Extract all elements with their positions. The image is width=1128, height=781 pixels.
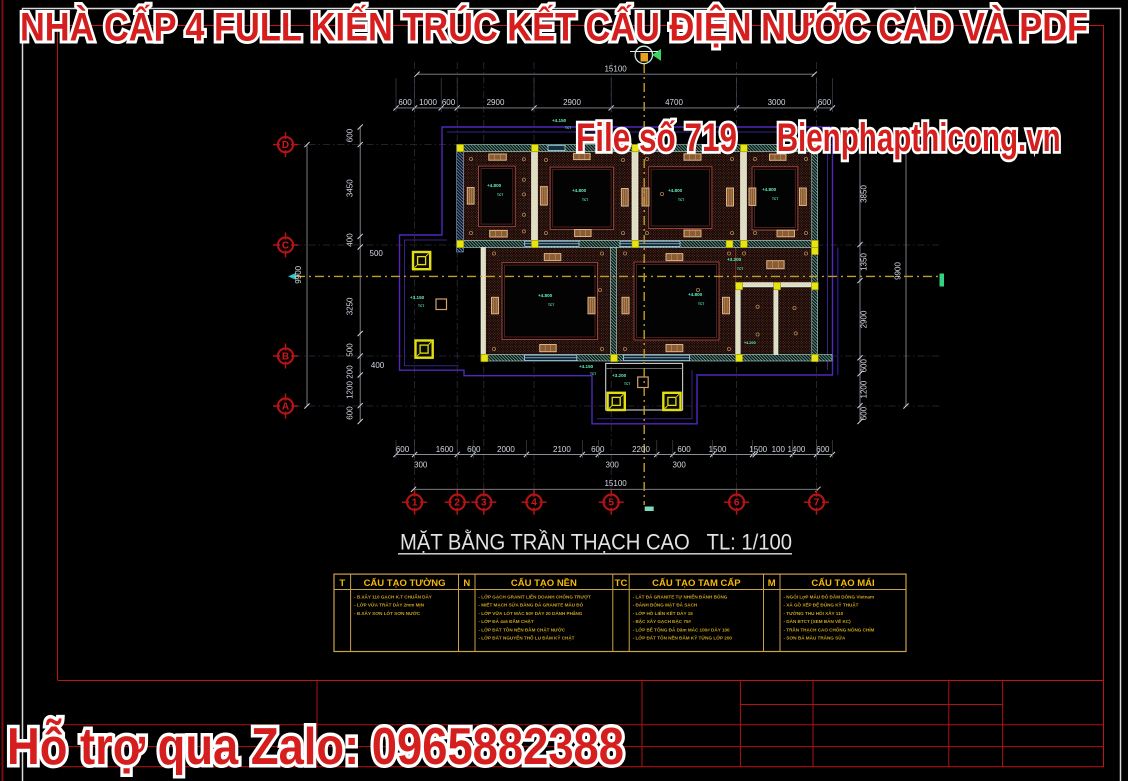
svg-text:- LỚP BÊ TÔNG ĐÁ Dăm MÁC 100#: - LỚP BÊ TÔNG ĐÁ Dăm MÁC 100# DÀY 100 xyxy=(633,625,730,632)
svg-text:- LỚP ĐẤT NGUYÊN THỔ LU ĐẦM KỸ: - LỚP ĐẤT NGUYÊN THỔ LU ĐẦM KỸ CHẶT xyxy=(479,634,575,641)
svg-text:- TƯỜNG THU HỒI XÂY 110: - TƯỜNG THU HỒI XÂY 110 xyxy=(784,609,844,616)
svg-text:- SƠN BẢ MÀU TRẮNG SỮA: - SƠN BẢ MÀU TRẮNG SỮA xyxy=(784,634,847,641)
svg-text:T: T xyxy=(339,578,345,589)
svg-text:- LỚP VỮA TRÁT DÀY 2mm MỊN: - LỚP VỮA TRÁT DÀY 2mm MỊN xyxy=(354,601,425,608)
svg-text:- LỚP ĐÁ 4x6 ĐẦM CHẶT: - LỚP ĐÁ 4x6 ĐẦM CHẶT xyxy=(479,617,534,624)
svg-text:300: 300 xyxy=(673,461,687,470)
svg-text:- LỚP ĐẤT TÔN NỀN ĐẦM CHẶT NƯỚ: - LỚP ĐẤT TÔN NỀN ĐẦM CHẶT NƯỚC xyxy=(479,625,566,632)
svg-text:15100: 15100 xyxy=(604,479,627,488)
svg-text:B: B xyxy=(282,352,289,363)
svg-text:1: 1 xyxy=(412,498,418,509)
svg-text:TCT: TCT xyxy=(624,382,630,386)
svg-text:NHÀ CẤP 4 FULL KIẾN TRÚC KẾT C: NHÀ CẤP 4 FULL KIẾN TRÚC KẾT CẤU ĐIỆN NƯ… xyxy=(20,6,1088,50)
svg-text:+4.800: +4.800 xyxy=(538,293,553,298)
svg-text:400: 400 xyxy=(371,361,385,370)
svg-text:6: 6 xyxy=(734,498,740,509)
svg-text:1350: 1350 xyxy=(860,253,869,271)
svg-text:1200: 1200 xyxy=(346,381,355,399)
svg-text:2: 2 xyxy=(454,498,460,509)
svg-text:600: 600 xyxy=(677,445,691,454)
svg-text:MẶT BẰNG TRẦN THẠCH CAO TL:: MẶT BẰNG TRẦN THẠCH CAO TL: 1/100 xyxy=(400,530,792,555)
svg-text:- ĐÁNH BÓNG MẶT ĐÁ SẠCH: - ĐÁNH BÓNG MẶT ĐÁ SẠCH xyxy=(633,601,698,608)
svg-text:CẤU TẠO NỀN: CẤU TẠO NỀN xyxy=(511,578,577,589)
svg-text:1500: 1500 xyxy=(749,445,767,454)
svg-text:TC: TC xyxy=(615,578,628,589)
svg-text:+4.800: +4.800 xyxy=(487,183,502,188)
svg-text:TCT: TCT xyxy=(678,198,684,202)
svg-text:TCT: TCT xyxy=(565,126,571,130)
svg-text:+4.200: +4.200 xyxy=(744,341,756,345)
svg-text:500: 500 xyxy=(370,249,384,258)
svg-text:- XÀ GỒ XẾP ĐỆ ĐÚNG KỸ THUẬT: - XÀ GỒ XẾP ĐỆ ĐÚNG KỸ THUẬT xyxy=(784,601,859,608)
svg-text:3000: 3000 xyxy=(768,98,786,107)
svg-text:D: D xyxy=(282,140,289,151)
svg-text:1000: 1000 xyxy=(419,98,437,107)
svg-text:TCT: TCT xyxy=(497,193,503,197)
svg-text:3450: 3450 xyxy=(346,179,355,197)
svg-text:M: M xyxy=(768,578,776,589)
svg-text:3: 3 xyxy=(481,498,487,509)
svg-text:9900: 9900 xyxy=(294,265,303,283)
svg-text:600: 600 xyxy=(860,358,869,372)
svg-text:600: 600 xyxy=(860,406,869,420)
svg-text:600: 600 xyxy=(467,445,481,454)
svg-text:+4.150: +4.150 xyxy=(579,364,594,369)
svg-text:4: 4 xyxy=(531,498,537,509)
svg-text:+3.200: +3.200 xyxy=(612,373,627,378)
svg-text:600: 600 xyxy=(346,406,355,420)
svg-text:15100: 15100 xyxy=(604,65,627,74)
svg-text:2100: 2100 xyxy=(553,445,571,454)
svg-text:- NGÓI LợP MÀU ĐỎ ĐẦM DÒNG Vie: - NGÓI LợP MÀU ĐỎ ĐẦM DÒNG Vietnam xyxy=(784,593,875,600)
svg-text:- LỚP HỒ LIÊN KẾT DÀY 15: - LỚP HỒ LIÊN KẾT DÀY 15 xyxy=(633,609,694,616)
svg-text:300: 300 xyxy=(414,461,428,470)
svg-text:TCT: TCT xyxy=(548,303,554,307)
svg-text:+4.800: +4.800 xyxy=(668,188,683,193)
svg-text:600: 600 xyxy=(442,98,456,107)
svg-text:- DÀN BTCT (XEM BẢN VẼ KC): - DÀN BTCT (XEM BẢN VẼ KC) xyxy=(784,618,852,624)
svg-text:1400: 1400 xyxy=(788,445,806,454)
svg-text:- LỚP ĐẤT TÔN NỀN ĐẦM KỸ TỪNG: - LỚP ĐẤT TÔN NỀN ĐẦM KỸ TỪNG LỚP 200 xyxy=(633,634,733,641)
svg-text:500: 500 xyxy=(346,343,355,357)
svg-text:A: A xyxy=(282,402,289,413)
svg-text:CẤU TẠO TƯỜNG: CẤU TẠO TƯỜNG xyxy=(364,577,446,589)
svg-text:5: 5 xyxy=(608,498,614,509)
svg-text:7: 7 xyxy=(814,498,820,509)
svg-text:Bienphapthicong.vn: Bienphapthicong.vn xyxy=(777,116,1061,160)
svg-text:- LỚP GẠCH GRANIT LIÊN DOANH C: - LỚP GẠCH GRANIT LIÊN DOANH CHỐNG TRƯỢT xyxy=(479,593,592,600)
svg-text:- B.XÂY 110 GẠCH K.T CHUẨN DÀY: - B.XÂY 110 GẠCH K.T CHUẨN DÀY xyxy=(354,594,432,600)
svg-text:2000: 2000 xyxy=(497,445,515,454)
svg-text:2200: 2200 xyxy=(632,445,650,454)
svg-text:2900: 2900 xyxy=(487,98,505,107)
svg-text:C: C xyxy=(282,241,289,252)
svg-text:600: 600 xyxy=(396,445,410,454)
svg-text:3850: 3850 xyxy=(860,185,869,203)
svg-text:- B.XÂY SƠN LÓT SƠN NƯỚC: - B.XÂY SƠN LÓT SƠN NƯỚC xyxy=(354,609,421,616)
svg-text:TCT: TCT xyxy=(737,267,743,271)
svg-text:- MIẾT MẠCH SỬA BẰNG ĐÁ GRANIT: - MIẾT MẠCH SỬA BẰNG ĐÁ GRANITE MÀU ĐỎ xyxy=(479,601,584,608)
svg-text:600: 600 xyxy=(398,98,412,107)
svg-text:600: 600 xyxy=(818,98,832,107)
svg-text:400: 400 xyxy=(346,233,355,247)
svg-text:CẤU TẠO TAM CẤP: CẤU TẠO TAM CẤP xyxy=(652,578,741,589)
svg-text:- BẬC XÂY GẠCH ĐẶC 75#: - BẬC XÂY GẠCH ĐẶC 75# xyxy=(633,618,692,624)
svg-text:1600: 1600 xyxy=(436,445,454,454)
svg-text:+3.200: +3.200 xyxy=(727,257,742,262)
svg-text:+3.150: +3.150 xyxy=(410,295,425,300)
svg-text:+4.800: +4.800 xyxy=(762,187,777,192)
svg-text:2900: 2900 xyxy=(563,98,581,107)
svg-text:CẤU TẠO MÁI: CẤU TẠO MÁI xyxy=(811,578,874,589)
svg-text:1500: 1500 xyxy=(709,445,727,454)
svg-text:+4.800: +4.800 xyxy=(572,188,587,193)
svg-text:- LỚP VỮA LÓT MÁC 50# DÀY 20 D: - LỚP VỮA LÓT MÁC 50# DÀY 20 DÁNH PHẳNG xyxy=(479,609,583,616)
svg-text:TCT: TCT xyxy=(698,302,704,306)
svg-text:- TRẦN THẠCH CAO CHỐNG NÓNG CH: - TRẦN THẠCH CAO CHỐNG NÓNG CHÍM xyxy=(784,625,875,632)
svg-text:4700: 4700 xyxy=(665,98,683,107)
svg-text:600: 600 xyxy=(346,128,355,142)
svg-text:+4.150: +4.150 xyxy=(552,118,567,123)
svg-text:300: 300 xyxy=(606,461,620,470)
svg-text:200: 200 xyxy=(346,365,355,379)
svg-text:TCT: TCT xyxy=(590,372,596,376)
svg-text:600: 600 xyxy=(816,445,830,454)
svg-text:Hỗ trợ qua Zalo: 0965882388: Hỗ trợ qua Zalo: 0965882388 xyxy=(7,717,624,775)
svg-text:N: N xyxy=(463,578,470,589)
svg-text:TCT: TCT xyxy=(772,197,778,201)
svg-text:100: 100 xyxy=(772,445,786,454)
svg-text:- LÁT ĐÁ GRANITE TỰ NHIÊN ĐÁNH: - LÁT ĐÁ GRANITE TỰ NHIÊN ĐÁNH BÓNG xyxy=(633,593,728,600)
svg-text:+4.800: +4.800 xyxy=(688,292,703,297)
svg-text:3250: 3250 xyxy=(346,297,355,315)
svg-text:2900: 2900 xyxy=(860,310,869,328)
svg-text:TCT: TCT xyxy=(418,304,424,308)
svg-text:TCT: TCT xyxy=(582,198,588,202)
svg-text:9900: 9900 xyxy=(894,262,903,280)
svg-text:1200: 1200 xyxy=(860,380,869,398)
svg-text:File số 719: File số 719 xyxy=(576,116,737,160)
